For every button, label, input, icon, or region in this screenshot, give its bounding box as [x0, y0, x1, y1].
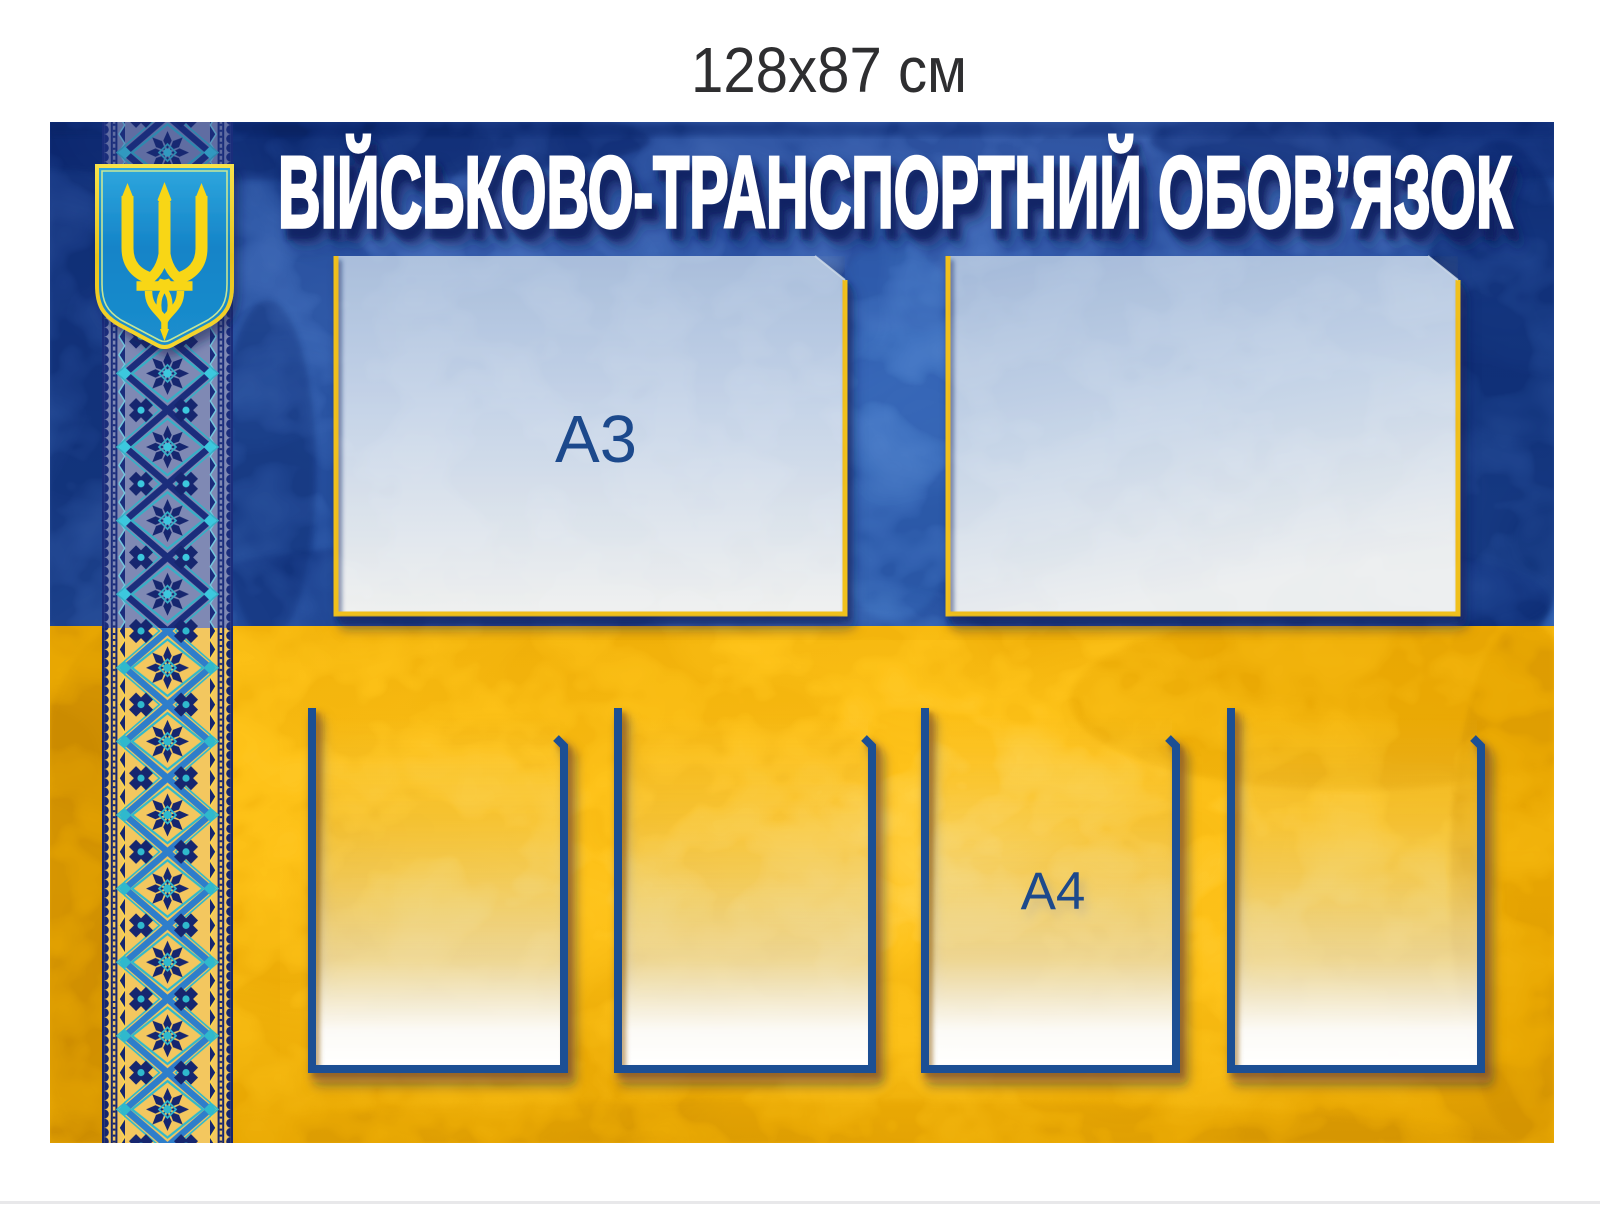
- svg-text:ВІЙСЬКОВО-ТРАНСПОРТНИЙ ОБОВ’ЯЗ: ВІЙСЬКОВО-ТРАНСПОРТНИЙ ОБОВ’ЯЗОК: [278, 136, 1512, 249]
- svg-text:А3: А3: [555, 402, 637, 477]
- svg-text:128x87 см: 128x87 см: [691, 34, 967, 106]
- svg-text:А4: А4: [1021, 862, 1086, 921]
